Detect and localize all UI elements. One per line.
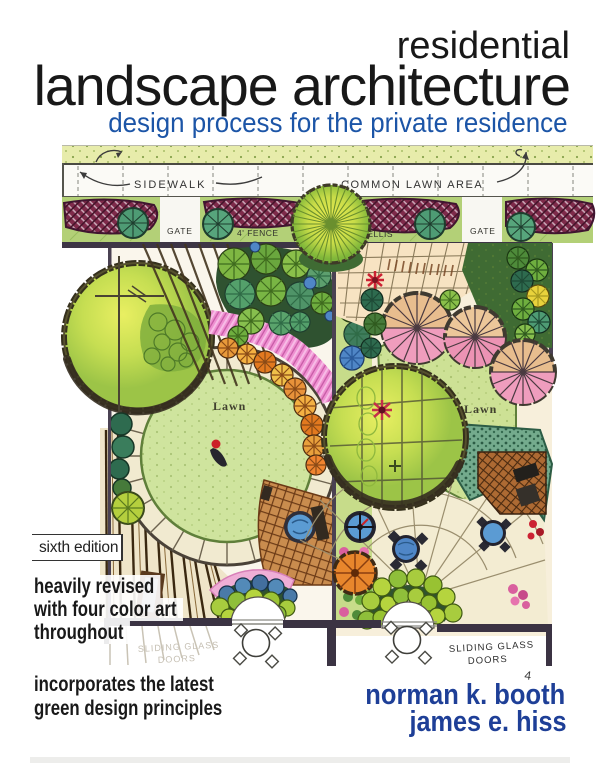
svg-text:GATE: GATE — [167, 226, 193, 236]
svg-text:SIDEWALK: SIDEWALK — [134, 179, 206, 191]
svg-text:SLIDING GLASS: SLIDING GLASS — [449, 640, 535, 655]
svg-text:4' FENCE: 4' FENCE — [237, 228, 279, 238]
svg-text:GATE: GATE — [470, 226, 496, 236]
svg-text:DOORS: DOORS — [468, 654, 508, 667]
svg-text:Lawn: Lawn — [213, 399, 246, 413]
svg-text:COMMON LAWN AREA: COMMON LAWN AREA — [341, 179, 483, 191]
svg-text:DOORS: DOORS — [158, 653, 196, 665]
svg-text:Lawn: Lawn — [464, 402, 497, 416]
